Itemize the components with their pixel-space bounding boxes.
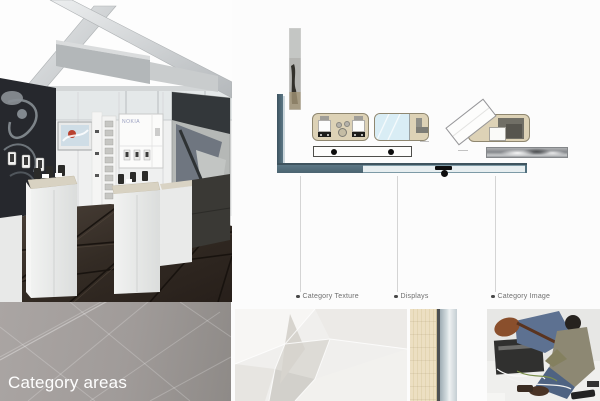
plan-counter-displays bbox=[312, 113, 369, 141]
category-image-photo bbox=[487, 309, 600, 401]
title-panel: Category areas bbox=[0, 302, 231, 401]
fixing-dot bbox=[388, 149, 394, 155]
counter-white-module bbox=[489, 127, 506, 141]
texture-facet-image bbox=[235, 309, 407, 401]
plan-display-bar bbox=[313, 146, 412, 157]
plan-dimension-mark bbox=[420, 141, 429, 142]
leader-line bbox=[495, 176, 496, 292]
callout-bullet-icon bbox=[394, 295, 398, 299]
plan-metal-texture-strip bbox=[486, 147, 568, 158]
fixing-dot bbox=[331, 149, 337, 155]
plan-connection-marker-dot bbox=[441, 170, 448, 177]
plan-counter-glass bbox=[374, 113, 429, 141]
table-symbol bbox=[338, 128, 347, 137]
display-stand-symbol bbox=[318, 116, 331, 137]
leader-line bbox=[300, 176, 301, 292]
callout-label: Category Texture bbox=[303, 293, 359, 300]
store-render-graphic: NOKIA bbox=[0, 0, 232, 302]
glass-panel-symbol bbox=[375, 114, 410, 140]
callout-displays: Displays bbox=[394, 293, 429, 300]
counter-dark-module-inner bbox=[506, 124, 522, 138]
callout-label: Displays bbox=[401, 293, 429, 300]
counter-texture-area bbox=[410, 114, 428, 140]
texture-wood-image bbox=[410, 309, 437, 401]
fixture-symbol bbox=[416, 127, 428, 133]
texture-blue-strip bbox=[440, 309, 457, 401]
callout-label: Category Image bbox=[498, 293, 551, 300]
store-render-image: NOKIA bbox=[0, 0, 232, 302]
stool-symbol bbox=[344, 121, 350, 127]
plan-wall-end-cap bbox=[525, 165, 527, 173]
plan-photo-strip bbox=[289, 28, 301, 110]
plan-dimension-mark bbox=[458, 150, 468, 151]
presentation-slide: NOKIA bbox=[0, 0, 600, 401]
cabinet-brand-text: NOKIA bbox=[122, 119, 140, 125]
page-title: Category areas bbox=[8, 373, 127, 393]
callout-bullet-icon bbox=[296, 295, 300, 299]
display-stand-symbol bbox=[352, 116, 365, 137]
plan-wall-vertical-inner-line bbox=[283, 96, 285, 165]
plan-wall-horizontal-solid bbox=[277, 165, 363, 173]
callout-category-image: Category Image bbox=[491, 293, 550, 300]
leader-line bbox=[397, 176, 398, 292]
callout-category-texture: Category Texture bbox=[296, 293, 359, 300]
callout-bullet-icon bbox=[491, 295, 495, 299]
